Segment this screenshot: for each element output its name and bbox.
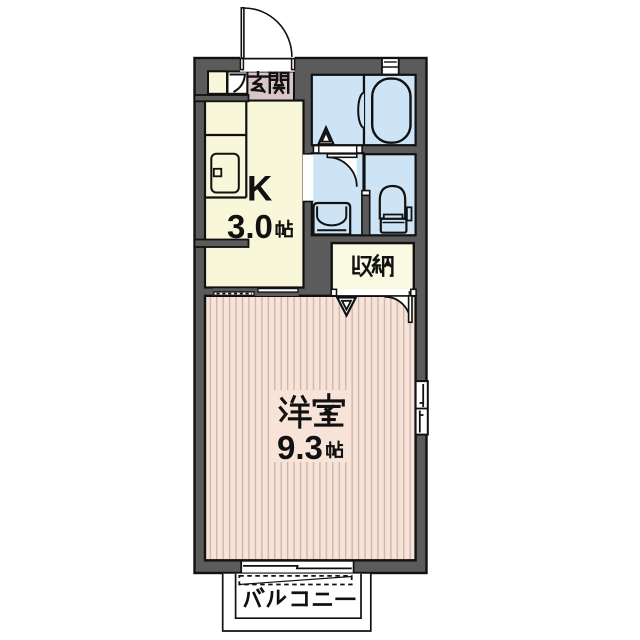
svg-text:K: K (247, 170, 272, 209)
svg-text:9.3: 9.3 (277, 429, 323, 466)
svg-text:3.0: 3.0 (227, 208, 273, 245)
